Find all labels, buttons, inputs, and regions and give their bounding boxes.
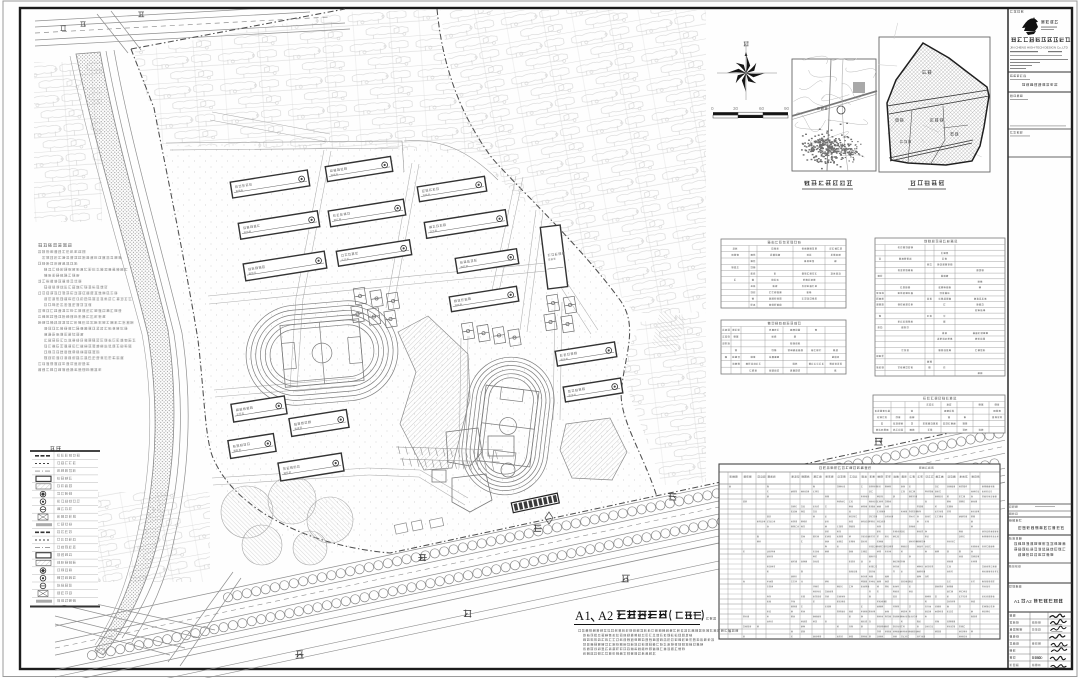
svg-text:A2: A2 [598,609,613,623]
svg-text:A1: A1 [1014,599,1020,604]
svg-text:JIN CHENG HIGH-TECH DESIGN Co.: JIN CHENG HIGH-TECH DESIGN Co.,LTD [1010,46,1069,50]
svg-text:A1: A1 [575,609,591,623]
svg-text:0: 0 [711,106,714,111]
svg-text:A2: A2 [1026,599,1032,604]
svg-text:30: 30 [733,106,739,111]
svg-text:90: 90 [784,106,790,111]
svg-text:1:1500: 1:1500 [1032,656,1042,660]
svg-text:60: 60 [759,106,765,111]
